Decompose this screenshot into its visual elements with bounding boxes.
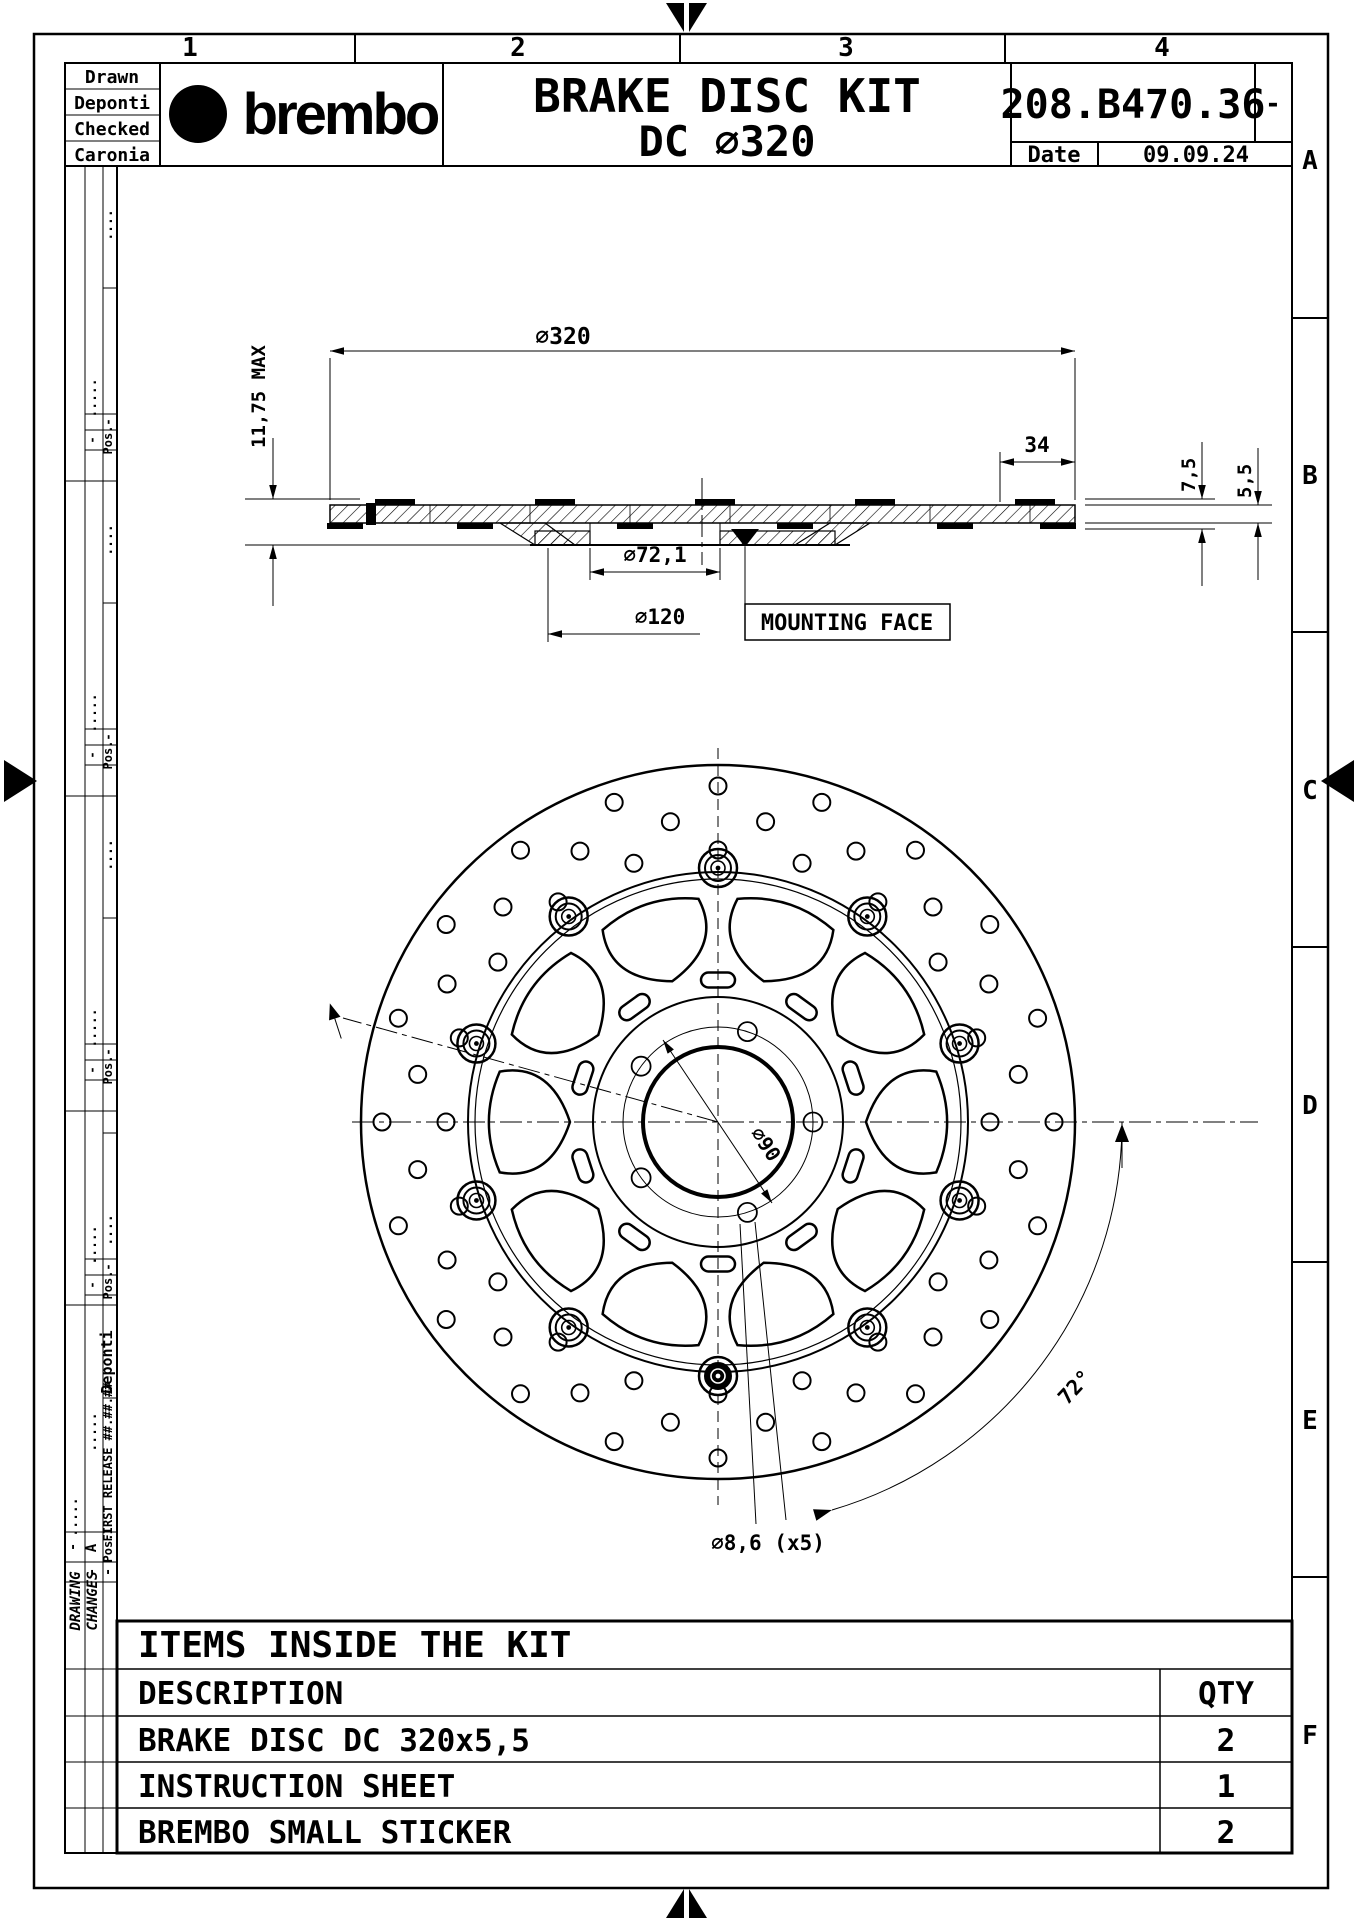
dim-angle-72: 72° (813, 1122, 1129, 1521)
drill-hole (438, 916, 455, 933)
button-pad-top (535, 499, 575, 505)
bobbin (941, 1025, 979, 1063)
pos-label: Pos. (101, 1056, 115, 1085)
date-label: Date (1028, 143, 1081, 168)
drill-hole (813, 794, 830, 811)
strip-dash: - (85, 751, 99, 758)
button-pad-bottom (1040, 523, 1076, 529)
drill-hole (409, 1066, 426, 1083)
drill-hole (572, 1384, 589, 1401)
drill-hole (512, 1385, 529, 1402)
drill-hole (495, 899, 512, 916)
checked-by: Caronia (74, 145, 150, 166)
drawing-changes-line1: DRAWING (68, 1571, 84, 1632)
zone-number: 1 (182, 33, 198, 63)
zone-letter: A (1302, 146, 1318, 176)
strip-dots: ..... (85, 693, 100, 732)
drill-hole (439, 1252, 456, 1269)
description-header: DESCRIPTION (138, 1676, 343, 1712)
dim-offset-34: 34 (1000, 433, 1075, 502)
zone-number: 3 (838, 33, 854, 63)
drawing-sheet: 1 2 3 4 A B C D E F Drawn Deponti (0, 0, 1358, 1920)
drill-hole (438, 1311, 455, 1328)
bobbin (457, 1025, 495, 1063)
strip-dash: - (101, 1048, 115, 1055)
dim-thickness-75: 7,5 (1085, 442, 1215, 586)
reference-pin (324, 1001, 347, 1040)
strip-dots: ..... (85, 1225, 100, 1264)
kit-table: ITEMS INSIDE THE KIT DESCRIPTION QTY BRA… (117, 1621, 1292, 1853)
drill-hole (981, 1311, 998, 1328)
drill-hole (907, 842, 924, 859)
button-pad-bottom (937, 523, 973, 529)
strip-dots: ..... (85, 1008, 100, 1047)
drill-hole (662, 813, 679, 830)
drill-hole (512, 842, 529, 859)
zone-letter: C (1302, 776, 1318, 806)
drawing-changes-line2: CHANGES (85, 1571, 101, 1630)
brembo-logo-mark: b (185, 91, 212, 140)
carrier-cutout (512, 953, 604, 1053)
carrier-cutout (730, 1263, 834, 1346)
button-pad-top (1015, 499, 1055, 505)
table-row: BREMBO SMALL STICKER 2 (138, 1815, 1235, 1851)
svg-text:72°: 72° (1053, 1365, 1096, 1409)
drill-hole (925, 899, 942, 916)
front-view: ∅90 72° ∅8,6 (x5) (324, 748, 1258, 1555)
drill-hole (930, 954, 947, 971)
pos-label: Pos. (101, 741, 115, 770)
side-section-view: ∅320 34 11,75 MAX 7,5 (245, 324, 1272, 642)
bobbin (550, 898, 588, 936)
brembo-logo: b brembo (169, 82, 439, 147)
drill-hole (606, 794, 623, 811)
button-pad-bottom (457, 523, 493, 529)
first-release-note: FIRST RELEASE ##.##.## (101, 1382, 115, 1542)
drill-hole (606, 1433, 623, 1450)
drawn-label: Drawn (85, 67, 139, 88)
qty-header: QTY (1198, 1676, 1254, 1712)
zone-letter: E (1302, 1406, 1318, 1436)
strip-dash: - (101, 418, 115, 425)
carrier-cutout (730, 898, 834, 981)
item-description: BRAKE DISC DC 320x5,5 (138, 1723, 530, 1759)
item-description: INSTRUCTION SHEET (138, 1769, 455, 1805)
part-number: 208.B470.36 (1001, 82, 1266, 128)
technical-drawing: 1 2 3 4 A B C D E F Drawn Deponti (0, 0, 1358, 1920)
drill-hole (1029, 1217, 1046, 1234)
carrier-cutout (512, 1191, 604, 1291)
drill-hole (495, 1329, 512, 1346)
svg-text:5,5: 5,5 (1234, 464, 1256, 498)
drill-hole (981, 916, 998, 933)
button-pad-top (695, 499, 735, 505)
hub-flange-left (535, 531, 590, 545)
strip-dash: - (85, 1281, 99, 1288)
bobbin (550, 1308, 588, 1346)
zone-letter: B (1302, 461, 1318, 491)
strip-dots: .... (101, 1214, 116, 1245)
drill-hole (794, 855, 811, 872)
drill-hole (390, 1010, 407, 1027)
bobbin (699, 1357, 737, 1395)
retaining-clip (366, 503, 376, 525)
button-pad-top (375, 499, 415, 505)
drill-hole (489, 954, 506, 971)
strip-dash: - (101, 733, 115, 740)
bobbin (848, 1308, 886, 1346)
drawing-title-line1: BRAKE DISC KIT (533, 69, 921, 123)
drill-hole (625, 855, 642, 872)
zone-letter: F (1302, 1721, 1318, 1751)
drill-hole (390, 1217, 407, 1234)
carrier-cutout (603, 1263, 707, 1346)
strip-dots: ..... (85, 1412, 100, 1451)
table-row: INSTRUCTION SHEET 1 (138, 1769, 1235, 1805)
drawing-title-line2: DC ∅320 (638, 117, 815, 166)
strip-dash: - (101, 1568, 116, 1576)
svg-text:∅120: ∅120 (635, 605, 686, 629)
revision-code: - (1265, 89, 1281, 119)
strip-dots: .... (101, 839, 116, 870)
date-value: 09.09.24 (1143, 143, 1249, 168)
dim-outer-diameter: ∅320 (330, 324, 1075, 500)
carrier-slot (571, 1147, 596, 1184)
drill-hole (848, 1384, 865, 1401)
drill-hole (662, 1414, 679, 1431)
carrier-cutout (603, 898, 707, 981)
button-pad-bottom (327, 523, 363, 529)
drill-hole (572, 843, 589, 860)
revision-letter: A (84, 1543, 100, 1552)
drawn-by: Deponti (74, 93, 150, 114)
carrier-cutout (832, 953, 924, 1053)
strip-dots: .... (101, 524, 116, 555)
svg-text:MOUNTING FACE: MOUNTING FACE (761, 611, 933, 636)
drill-hole (930, 1273, 947, 1290)
bobbin (941, 1181, 979, 1219)
strip-dots: ..... (85, 378, 100, 417)
carrier-cutout (832, 1191, 924, 1291)
button-pad-bottom (617, 523, 653, 529)
drill-hole (848, 843, 865, 860)
bobbin (848, 898, 886, 936)
item-qty: 1 (1217, 1769, 1236, 1805)
drill-hole (980, 976, 997, 993)
drill-hole (907, 1385, 924, 1402)
dim-max-width: 11,75 MAX (245, 344, 530, 606)
dim-bore: ∅72,1 (590, 543, 720, 580)
zone-letter: D (1302, 1091, 1318, 1121)
item-qty: 2 (1217, 1723, 1236, 1759)
strip-dots: .... (101, 209, 116, 240)
drill-hole (980, 1252, 997, 1269)
revision-strip: Deponti FIRST RELEASE ##.##.## ..... ...… (65, 166, 117, 1853)
pos-label: Pos. (101, 1534, 115, 1563)
bobbin (699, 849, 737, 887)
strip-dash: - (101, 1263, 115, 1270)
button-pad-top (855, 499, 895, 505)
svg-text:11,75 MAX: 11,75 MAX (248, 344, 270, 448)
zone-number: 2 (510, 33, 526, 63)
table-row: BRAKE DISC DC 320x5,5 2 (138, 1723, 1235, 1759)
svg-text:∅90: ∅90 (746, 1122, 786, 1165)
drill-hole (409, 1161, 426, 1178)
drill-hole (439, 976, 456, 993)
svg-text:∅8,6 (x5): ∅8,6 (x5) (711, 1531, 825, 1555)
svg-text:∅320: ∅320 (535, 324, 590, 350)
drill-hole (757, 813, 774, 830)
drill-hole (757, 1414, 774, 1431)
checked-label: Checked (74, 119, 150, 140)
item-qty: 2 (1217, 1815, 1236, 1851)
strip-dash: - (66, 1543, 81, 1551)
pos-label: Pos. (101, 426, 115, 455)
item-description: BREMBO SMALL STICKER (138, 1815, 512, 1851)
drill-hole (489, 1273, 506, 1290)
button-pad-bottom (777, 523, 813, 529)
drill-hole (1010, 1066, 1027, 1083)
strip-dash: - (85, 436, 99, 443)
carrier-slot (841, 1060, 866, 1097)
bobbin (457, 1181, 495, 1219)
drill-hole (1010, 1161, 1027, 1178)
svg-text:7,5: 7,5 (1178, 458, 1200, 492)
pos-label: Pos. (101, 1271, 115, 1300)
drill-hole (813, 1433, 830, 1450)
drill-hole (794, 1372, 811, 1389)
drill-hole (625, 1372, 642, 1389)
strip-dash: - (85, 1066, 99, 1073)
drill-hole (925, 1329, 942, 1346)
title-block: Drawn Deponti Checked Caronia b brembo B… (65, 63, 1292, 168)
carrier-slot (571, 1060, 596, 1097)
strip-dots: ..... (66, 1497, 81, 1536)
svg-text:∅72,1: ∅72,1 (623, 543, 686, 567)
kit-table-title: ITEMS INSIDE THE KIT (138, 1625, 571, 1666)
svg-text:34: 34 (1024, 433, 1049, 457)
zone-number: 4 (1154, 33, 1170, 63)
drill-hole (1029, 1010, 1046, 1027)
brembo-wordmark: brembo (243, 82, 439, 147)
carrier-slot (841, 1147, 866, 1184)
